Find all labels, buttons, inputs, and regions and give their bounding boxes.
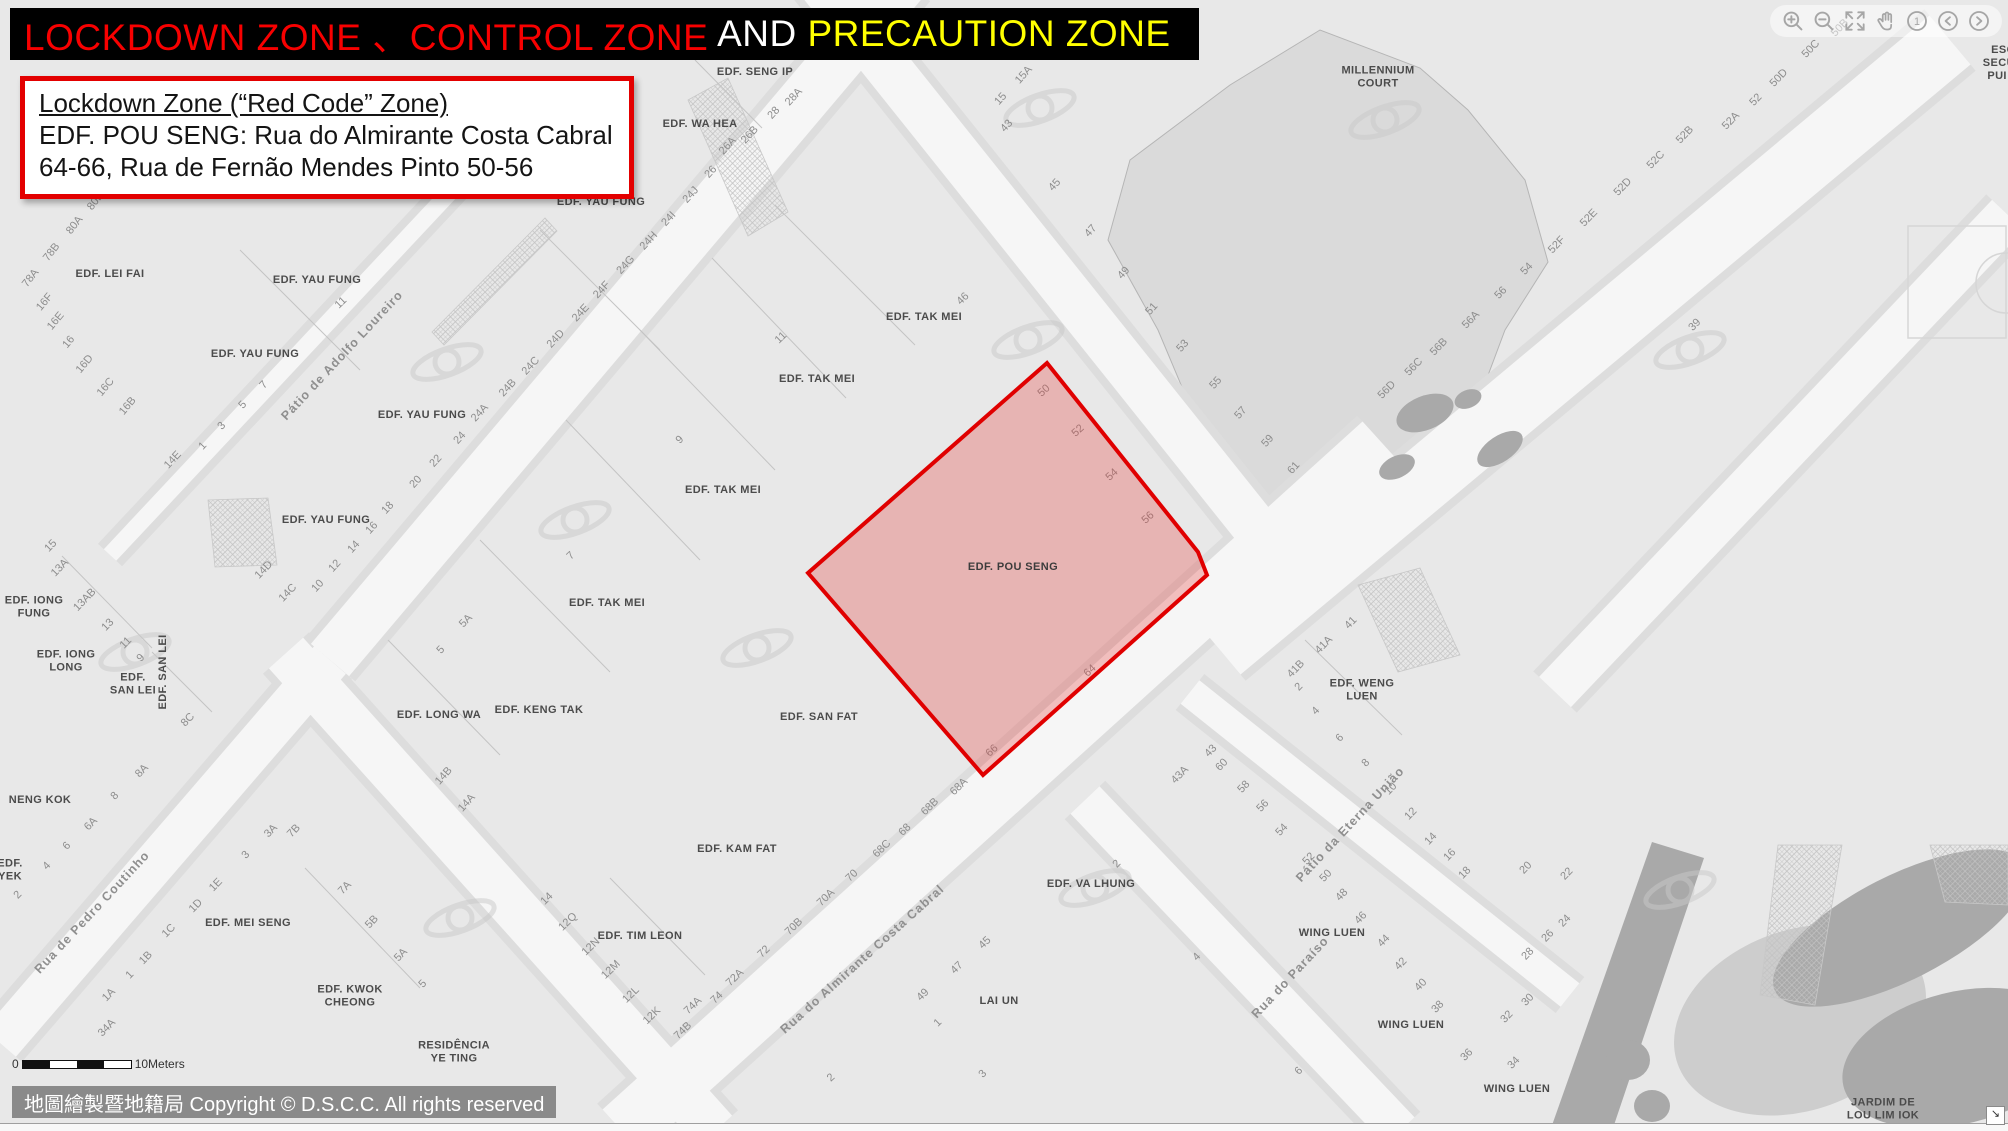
building-label: JARDIM DELOU LIM IOK	[1847, 1097, 1919, 1122]
building-label: EDF. KENG TAK	[495, 704, 584, 716]
building-label: EDF. KWOKCHEONG	[317, 984, 382, 1009]
scale-zero-label: 0	[12, 1057, 19, 1071]
map-toolbar: 1	[1770, 5, 2002, 37]
previous-extent-icon	[1935, 8, 1961, 34]
building-label: EDF.YEK	[0, 858, 23, 883]
info-heading: Lockdown Zone (“Red Code” Zone)	[39, 87, 613, 119]
building-label: EDF. TAK MEI	[685, 484, 761, 496]
next-extent-button[interactable]	[1965, 7, 1993, 35]
building-label: EDF. YAU FUNG	[211, 348, 299, 360]
title-banner: LOCKDOWN ZONE 、CONTROL ZONE AND PRECAUTI…	[10, 8, 1199, 60]
building-label: EDF. WA HEA	[663, 118, 738, 130]
building-label: EDF. LEI FAI	[76, 268, 145, 280]
title-segment: PRECAUTION ZONE	[807, 13, 1170, 55]
building-label: EDF. KAM FAT	[697, 843, 777, 855]
zoom-in-icon	[1780, 8, 1806, 34]
building-label: EDF. VA LHUNG	[1047, 878, 1135, 890]
building-label: EDF. YAU FUNG	[273, 274, 361, 286]
building-label: EDF. TIM LEON	[598, 930, 683, 942]
default-extent-button[interactable]: 1	[1903, 7, 1931, 35]
zoom-out-icon	[1811, 8, 1837, 34]
building-label: EDF. TAK MEI	[569, 597, 645, 609]
building-label: EDF. TAK MEI	[886, 311, 962, 323]
garden-vegetation	[1606, 1040, 1650, 1080]
pan-button[interactable]	[1872, 7, 1900, 35]
hatched-area	[208, 498, 277, 567]
scale-bar: 0 10Meters	[12, 1057, 185, 1071]
lockdown-zone-label: EDF. POU SENG	[968, 561, 1058, 573]
copyright-text: 地圖繪製暨地籍局 Copyright © D.S.C.C. All rights…	[24, 1088, 544, 1117]
next-extent-icon	[1966, 8, 1992, 34]
building-label: WING LUEN	[1484, 1083, 1551, 1095]
info-address-line-1: EDF. POU SENG: Rua do Almirante Costa Ca…	[39, 119, 613, 151]
scale-length-label: 10Meters	[135, 1057, 185, 1071]
garden-vegetation	[1634, 1090, 1670, 1122]
building-label: LAI UN	[979, 995, 1018, 1007]
title-segment: AND	[708, 13, 807, 55]
title-segment: LOCKDOWN ZONE 、CONTROL ZONE	[24, 7, 708, 61]
scale-bar-segments	[22, 1060, 132, 1069]
info-address-line-2: 64-66, Rua de Fernão Mendes Pinto 50-56	[39, 151, 613, 183]
pan-hand-icon	[1873, 8, 1899, 34]
building-label: EDF. SAN LEI	[157, 634, 169, 709]
zoom-out-button[interactable]	[1810, 7, 1838, 35]
zoom-in-button[interactable]	[1779, 7, 1807, 35]
building-label: EDF. SENG IP	[717, 66, 793, 78]
building-label: NENG KOK	[9, 794, 71, 806]
bottom-edge-strip	[0, 1124, 2008, 1131]
building-label: EDF. LONG WA	[397, 709, 481, 721]
svg-text:1: 1	[1914, 16, 1920, 28]
resize-corner-button[interactable]: ↘	[1986, 1106, 2005, 1125]
map-application: 80B80A78B78A16F16E1616D16C16B11753114E14…	[0, 0, 2008, 1131]
full-extent-button[interactable]	[1841, 7, 1869, 35]
previous-extent-button[interactable]	[1934, 7, 1962, 35]
default-extent-icon: 1	[1904, 8, 1930, 34]
full-extent-icon	[1842, 8, 1868, 34]
building-label: EDF. YAU FUNG	[282, 514, 370, 526]
building-label: WING LUEN	[1299, 927, 1366, 939]
lockdown-info-box: Lockdown Zone (“Red Code” Zone) EDF. POU…	[20, 76, 634, 199]
building-label: WING LUEN	[1378, 1019, 1445, 1031]
building-label: EDF. SAN FAT	[780, 711, 858, 723]
building-label: EDF. YAU FUNG	[378, 409, 466, 421]
building-label: EDF. TAK MEI	[779, 373, 855, 385]
copyright-bar: 地圖繪製暨地籍局 Copyright © D.S.C.C. All rights…	[12, 1086, 556, 1118]
building-label: EDF. MEI SENG	[205, 917, 291, 929]
